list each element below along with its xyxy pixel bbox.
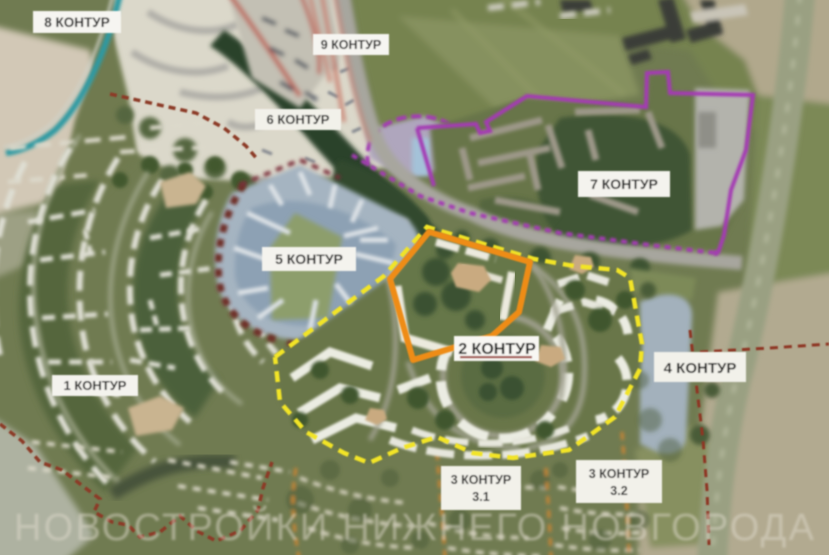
svg-text:5 КОНТУР: 5 КОНТУР xyxy=(275,251,343,267)
svg-text:9 КОНТУР: 9 КОНТУР xyxy=(321,38,382,52)
svg-text:4 КОНТУР: 4 КОНТУР xyxy=(664,360,737,377)
svg-text:8 КОНТУР: 8 КОНТУР xyxy=(44,15,109,30)
svg-text:7 КОНТУР: 7 КОНТУР xyxy=(590,176,658,192)
svg-text:1 КОНТУР: 1 КОНТУР xyxy=(64,378,127,393)
svg-text:3 КОНТУР: 3 КОНТУР xyxy=(451,473,512,487)
svg-text:3.2: 3.2 xyxy=(610,484,627,498)
svg-text:2 КОНТУР: 2 КОНТУР xyxy=(458,341,536,358)
svg-text:3 КОНТУР: 3 КОНТУР xyxy=(589,467,650,481)
svg-text:3.1: 3.1 xyxy=(472,490,489,504)
svg-text:НОВОСТРОЙКИ НИЖНЕГО НОВГОРОДА: НОВОСТРОЙКИ НИЖНЕГО НОВГОРОДА xyxy=(14,504,815,549)
svg-text:6 КОНТУР: 6 КОНТУР xyxy=(267,112,330,127)
